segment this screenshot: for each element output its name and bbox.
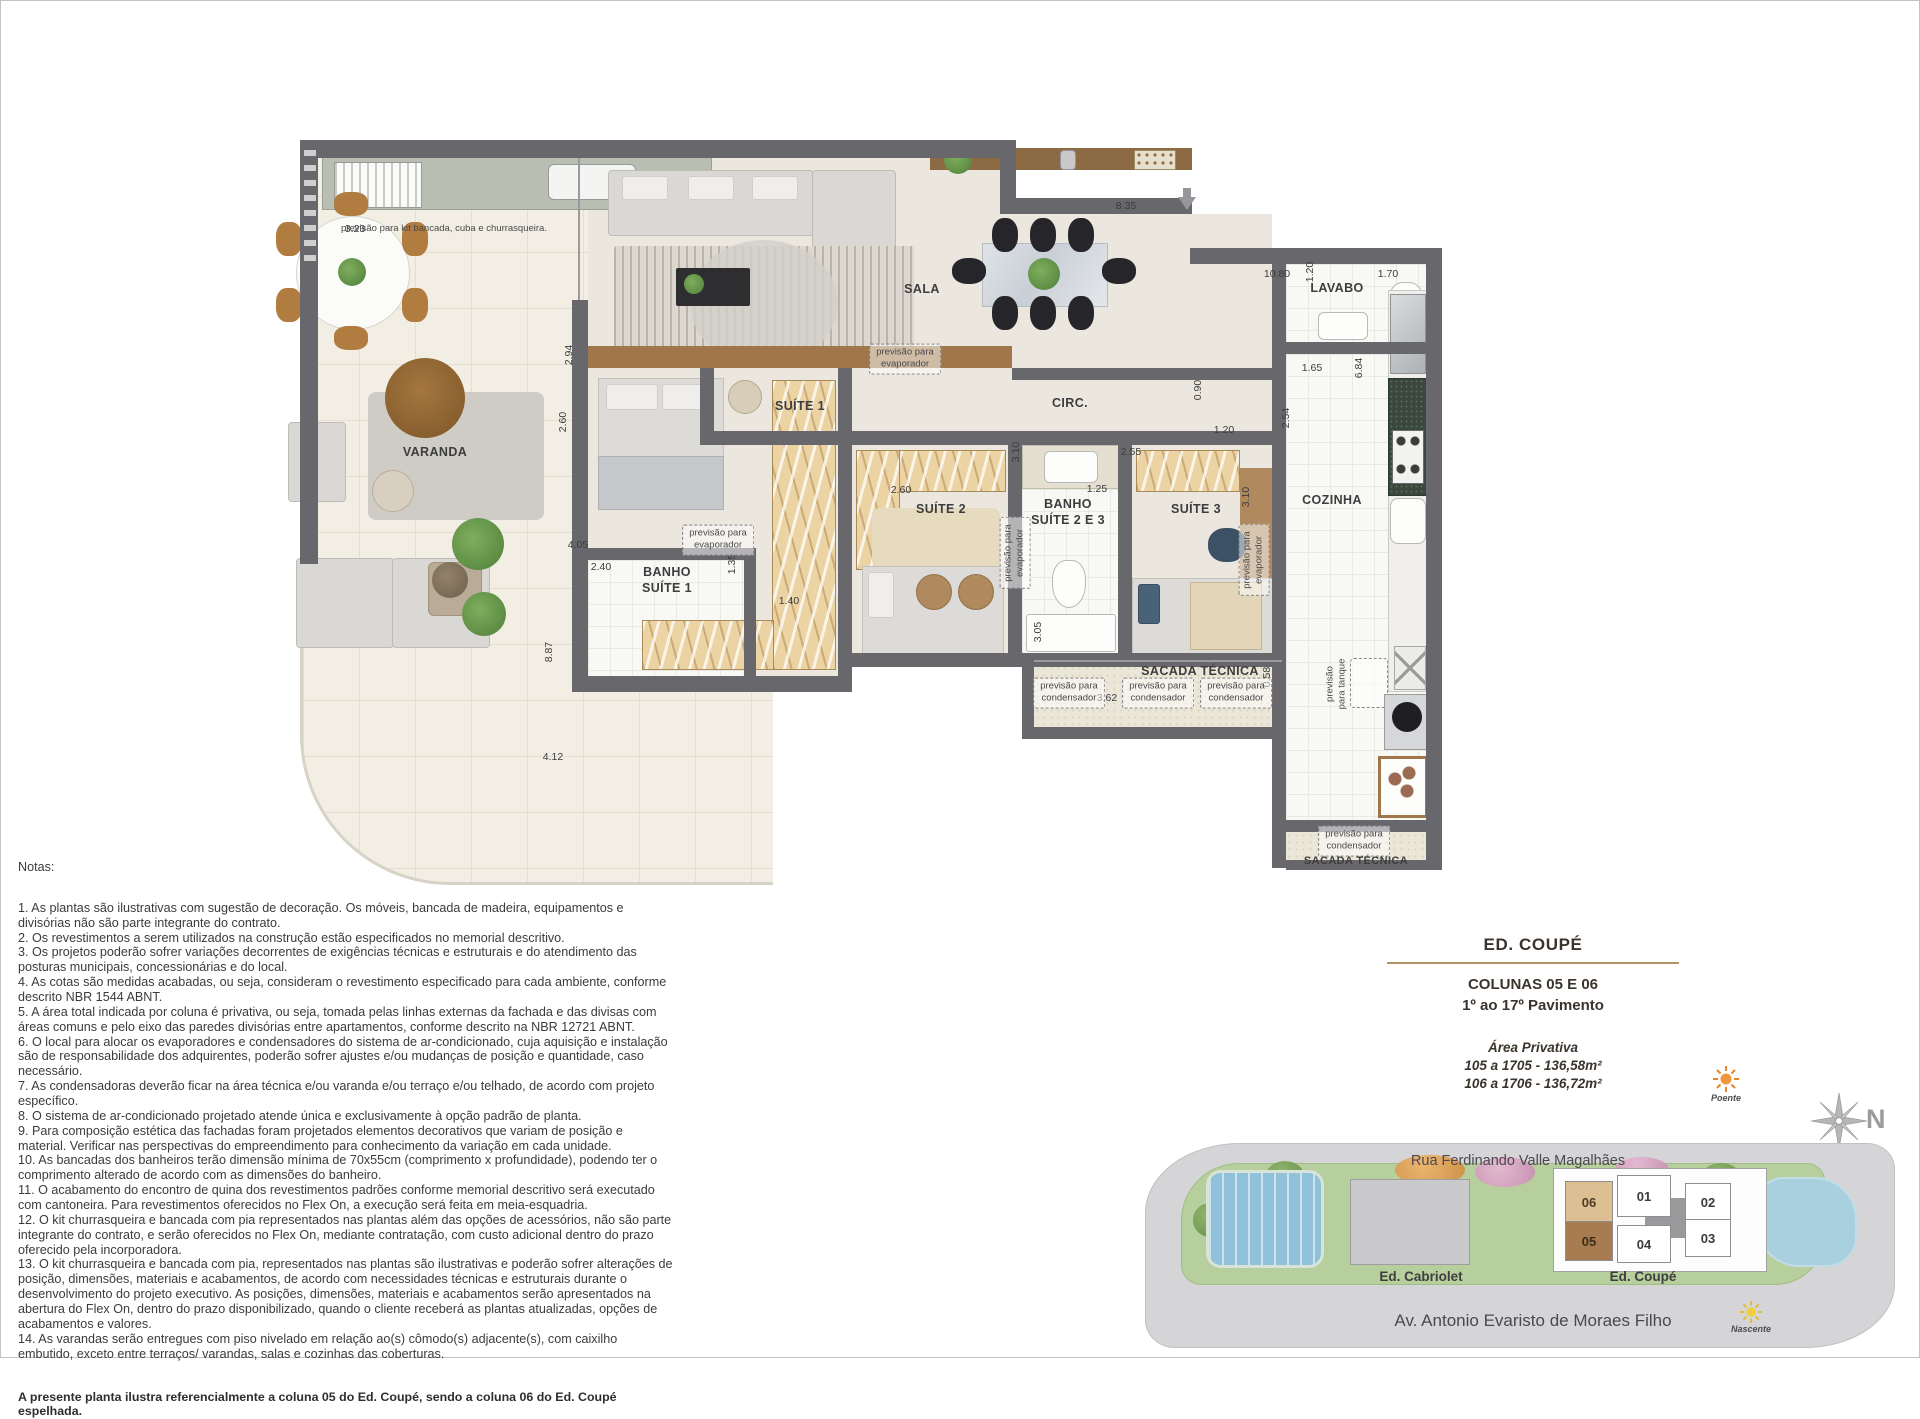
water-feature	[1757, 1177, 1857, 1267]
dimension-label: 3.10	[1240, 487, 1252, 507]
annotation-evaporador: previsão para evaporador	[1000, 517, 1031, 589]
site-plan: 06 01 02 05 04 03 Ed. Cabriolet Ed. Coup…	[1145, 1143, 1895, 1348]
fridge-icon	[1390, 294, 1426, 374]
unit-label: 03	[1701, 1231, 1715, 1246]
unit-05: 05	[1565, 1221, 1613, 1261]
entry-arrow-icon	[1183, 188, 1191, 197]
annotation-condensador: previsão para condensador	[1122, 678, 1194, 709]
note-item: 11. O acabamento do encontro de quina do…	[18, 1183, 673, 1213]
wall-segment	[1118, 445, 1132, 667]
suite1-headboard-console	[588, 346, 1012, 368]
laundry-basket-icon	[1378, 756, 1428, 818]
wall-segment	[572, 676, 852, 692]
glass-door-line	[578, 158, 580, 300]
building-cabriolet-label: Ed. Cabriolet	[1379, 1269, 1462, 1284]
annotation-kit-bancada: previsão para kit bancada, cuba e churra…	[341, 223, 547, 235]
room-label-circ: CIRC.	[1052, 395, 1088, 411]
side-table-icon	[372, 470, 414, 512]
floors-title: 1º ao 17º Pavimento	[1383, 997, 1683, 1014]
wall-segment	[744, 548, 756, 688]
pool	[1209, 1173, 1321, 1265]
varanda-plant-icon	[462, 592, 506, 636]
lavabo-sink-icon	[1318, 312, 1368, 340]
notes-heading: Notas:	[18, 860, 673, 875]
suite1-pillow	[606, 384, 658, 410]
dimension-label: 3.05	[1032, 622, 1044, 642]
tanque-dashed-icon	[1350, 658, 1388, 708]
entry-arrow-icon	[1178, 197, 1196, 210]
glass-door-line	[1034, 660, 1282, 662]
unit-label: 06	[1582, 1195, 1596, 1210]
building-title: ED. COUPÉ	[1383, 935, 1683, 955]
unit-06: 06	[1565, 1181, 1613, 1223]
street-label-bottom: Av. Antonio Evaristo de Moraes Filho	[1394, 1311, 1671, 1331]
suite2-pouf	[958, 574, 994, 610]
dining-chair	[1102, 258, 1136, 284]
dining-chair	[1030, 296, 1056, 330]
banho23-sink-icon	[1044, 451, 1098, 483]
sun-west: Poente	[1706, 1066, 1746, 1103]
note-item: 7. As condensadoras deverão ficar na áre…	[18, 1079, 673, 1109]
private-area-line: 105 a 1705 - 136,58m²	[1383, 1058, 1683, 1073]
varanda-chair	[276, 222, 302, 256]
notes-block: Notas: 1. As plantas são ilustrativas co…	[18, 860, 673, 1419]
note-item: 8. O sistema de ar-condicionado projetad…	[18, 1109, 673, 1124]
round-coffee-table	[385, 358, 465, 438]
note-item: 4. As cotas são medidas acabadas, ou sej…	[18, 975, 673, 1005]
dimension-label: 6.84	[1353, 358, 1365, 378]
dimension-label: 1.20	[1304, 262, 1316, 282]
suite2-pillow	[868, 572, 894, 618]
compass-north-label: N	[1866, 1104, 1886, 1135]
wall-segment	[1022, 727, 1282, 739]
title-block: ED. COUPÉ COLUNAS 05 E 06 1º ao 17º Pavi…	[1383, 935, 1683, 1091]
dining-chair	[952, 258, 986, 284]
varanda-chair	[402, 288, 428, 322]
wall-segment	[1190, 248, 1442, 264]
dining-chair	[1068, 296, 1094, 330]
dimension-label: 2.60	[891, 484, 911, 496]
dining-chair	[1068, 218, 1094, 252]
cobogo-strip	[303, 150, 317, 270]
room-label-banho-suite1: BANHO SUÍTE 1	[642, 564, 692, 597]
unit-03: 03	[1685, 1219, 1731, 1257]
varanda-chair	[334, 326, 368, 350]
sun-west-label: Poente	[1706, 1093, 1746, 1103]
dimension-label: 1.25	[1087, 483, 1107, 495]
note-item: 12. O kit churrasqueira e bancada com pi…	[18, 1213, 673, 1258]
tv-plant-icon	[684, 274, 704, 294]
wall-segment	[1012, 368, 1272, 380]
dimension-label: 1.35	[726, 554, 738, 574]
sofa-pillow	[752, 176, 798, 200]
annotation-evaporador: previsão para evaporador	[682, 525, 754, 556]
note-item: 2. Os revestimentos a serem utilizados n…	[18, 931, 673, 946]
kitchen-sink-icon	[1390, 498, 1426, 544]
dimension-label: 1.65	[1302, 362, 1322, 374]
columns-title: COLUNAS 05 E 06	[1383, 976, 1683, 993]
annotation-condensador: previsão para condensador	[1318, 826, 1390, 857]
washing-machine-drum-icon	[1392, 702, 1422, 732]
note-item: 9. Para composição estética das fachadas…	[18, 1124, 673, 1154]
sala-round-planter	[610, 176, 618, 184]
wall-segment	[1426, 248, 1442, 870]
dimension-label: 4.12	[543, 751, 563, 763]
unit-04: 04	[1617, 1225, 1671, 1263]
dimension-label: 2.54	[1280, 408, 1292, 428]
annotation-evaporador: previsão para evaporador	[1239, 524, 1270, 596]
annotation-condensador: previsão para condensador	[1200, 678, 1272, 709]
sofa-pillow	[688, 176, 734, 200]
dimension-label: 1.20	[1214, 424, 1234, 436]
varanda-chair	[276, 288, 302, 322]
note-item: 6. O local para alocar os evaporadores e…	[18, 1035, 673, 1080]
dimension-label: 2.40	[591, 561, 611, 573]
wall-segment	[700, 431, 1280, 445]
building-cabriolet	[1350, 1179, 1470, 1265]
sun-icon	[1713, 1066, 1739, 1092]
room-label-suite3: SUÍTE 3	[1171, 501, 1221, 517]
dimension-label: 2.60	[557, 412, 569, 432]
stove-icon	[1392, 430, 1424, 484]
unit-label: 04	[1637, 1237, 1651, 1252]
room-label-sala: SALA	[904, 281, 940, 297]
sofa-pillow	[622, 176, 668, 200]
dimension-label: 2.94	[563, 345, 575, 365]
compass-icon	[1810, 1092, 1868, 1150]
wall-segment	[1272, 256, 1286, 868]
note-item: 14. As varandas serão entregues com piso…	[18, 1332, 673, 1362]
dimension-label: 4.05	[568, 539, 588, 551]
dimension-label: 1.70	[1378, 268, 1398, 280]
varanda-sofa-left	[296, 558, 394, 648]
dimension-label: 3.10	[1010, 442, 1022, 462]
stone-table-icon	[432, 562, 468, 598]
shelf-tray-icon	[1134, 150, 1176, 170]
building-coupe-label: Ed. Coupé	[1610, 1269, 1677, 1284]
note-item: 1. As plantas são ilustrativas com suges…	[18, 901, 673, 931]
note-item: 5. A área total indicada por coluna é pr…	[18, 1005, 673, 1035]
sun-icon	[1740, 1301, 1762, 1323]
banho23-toilet-icon	[1052, 560, 1086, 608]
dimension-label: 2.55	[1121, 446, 1141, 458]
unit-label: 01	[1637, 1189, 1651, 1204]
note-item: 3. Os projetos poderão sofrer variações …	[18, 945, 673, 975]
shelf-vase-icon	[1060, 150, 1076, 170]
dimension-label: 1.40	[779, 595, 799, 607]
unit-02: 02	[1685, 1183, 1731, 1221]
note-item: 13. O kit churrasqueira e bancada com pi…	[18, 1257, 673, 1331]
wall-segment	[1286, 342, 1426, 354]
room-label-suite1: SUÍTE 1	[775, 398, 825, 414]
room-label-lavabo: LAVABO	[1310, 280, 1363, 296]
table-plant-icon	[338, 258, 366, 286]
wall-segment	[1000, 198, 1192, 214]
private-area-heading: Área Privativa	[1383, 1040, 1683, 1055]
dining-chair	[992, 296, 1018, 330]
sun-east: Nascente	[1729, 1301, 1773, 1334]
suite1-nightstand	[728, 380, 762, 414]
annotation-evaporador: previsão para evaporador	[869, 344, 941, 375]
room-label-suite2: SUÍTE 2	[916, 501, 966, 517]
street-label-top: Rua Ferdinando Valle Magalhães	[1411, 1153, 1625, 1169]
room-label-varanda: VARANDA	[403, 444, 467, 460]
private-area-line: 106 a 1706 - 136,72m²	[1383, 1076, 1683, 1091]
room-label-cozinha: COZINHA	[1302, 492, 1362, 508]
title-divider	[1387, 962, 1679, 964]
dining-chair	[1030, 218, 1056, 252]
annotation-condensador: previsão para condensador	[1033, 678, 1105, 709]
suite3-closet	[1136, 450, 1240, 492]
sun-east-label: Nascente	[1729, 1324, 1773, 1334]
unit-label: 05	[1582, 1234, 1596, 1249]
varanda-chair	[334, 192, 368, 216]
unit-label: 02	[1701, 1195, 1715, 1210]
kitchen-shaft-hatch	[1394, 646, 1426, 690]
wall-segment	[300, 140, 1016, 158]
suite2-pouf	[916, 574, 952, 610]
unit-01: 01	[1617, 1175, 1671, 1217]
varanda-plant-icon	[452, 518, 504, 570]
suite1-blanket	[598, 456, 724, 510]
dining-chair	[992, 218, 1018, 252]
dimension-label: 8.87	[543, 642, 555, 662]
room-label-banho-suites23: BANHO SUÍTE 2 E 3	[1031, 496, 1105, 529]
wall-segment	[838, 368, 852, 676]
dimension-label: 10.80	[1264, 268, 1290, 280]
annotation-tanque: previsão para tanque	[1325, 659, 1350, 710]
notes-footer: A presente planta ilustra referencialmen…	[18, 1390, 673, 1419]
dimension-label: 0.90	[1192, 380, 1204, 400]
dimension-label: 8.35	[1116, 200, 1136, 212]
note-item: 10. As bancadas dos banheiros terão dime…	[18, 1153, 673, 1183]
suite1-closet	[772, 380, 836, 670]
suite3-pillow	[1138, 584, 1160, 624]
dining-plant-icon	[1028, 258, 1060, 290]
